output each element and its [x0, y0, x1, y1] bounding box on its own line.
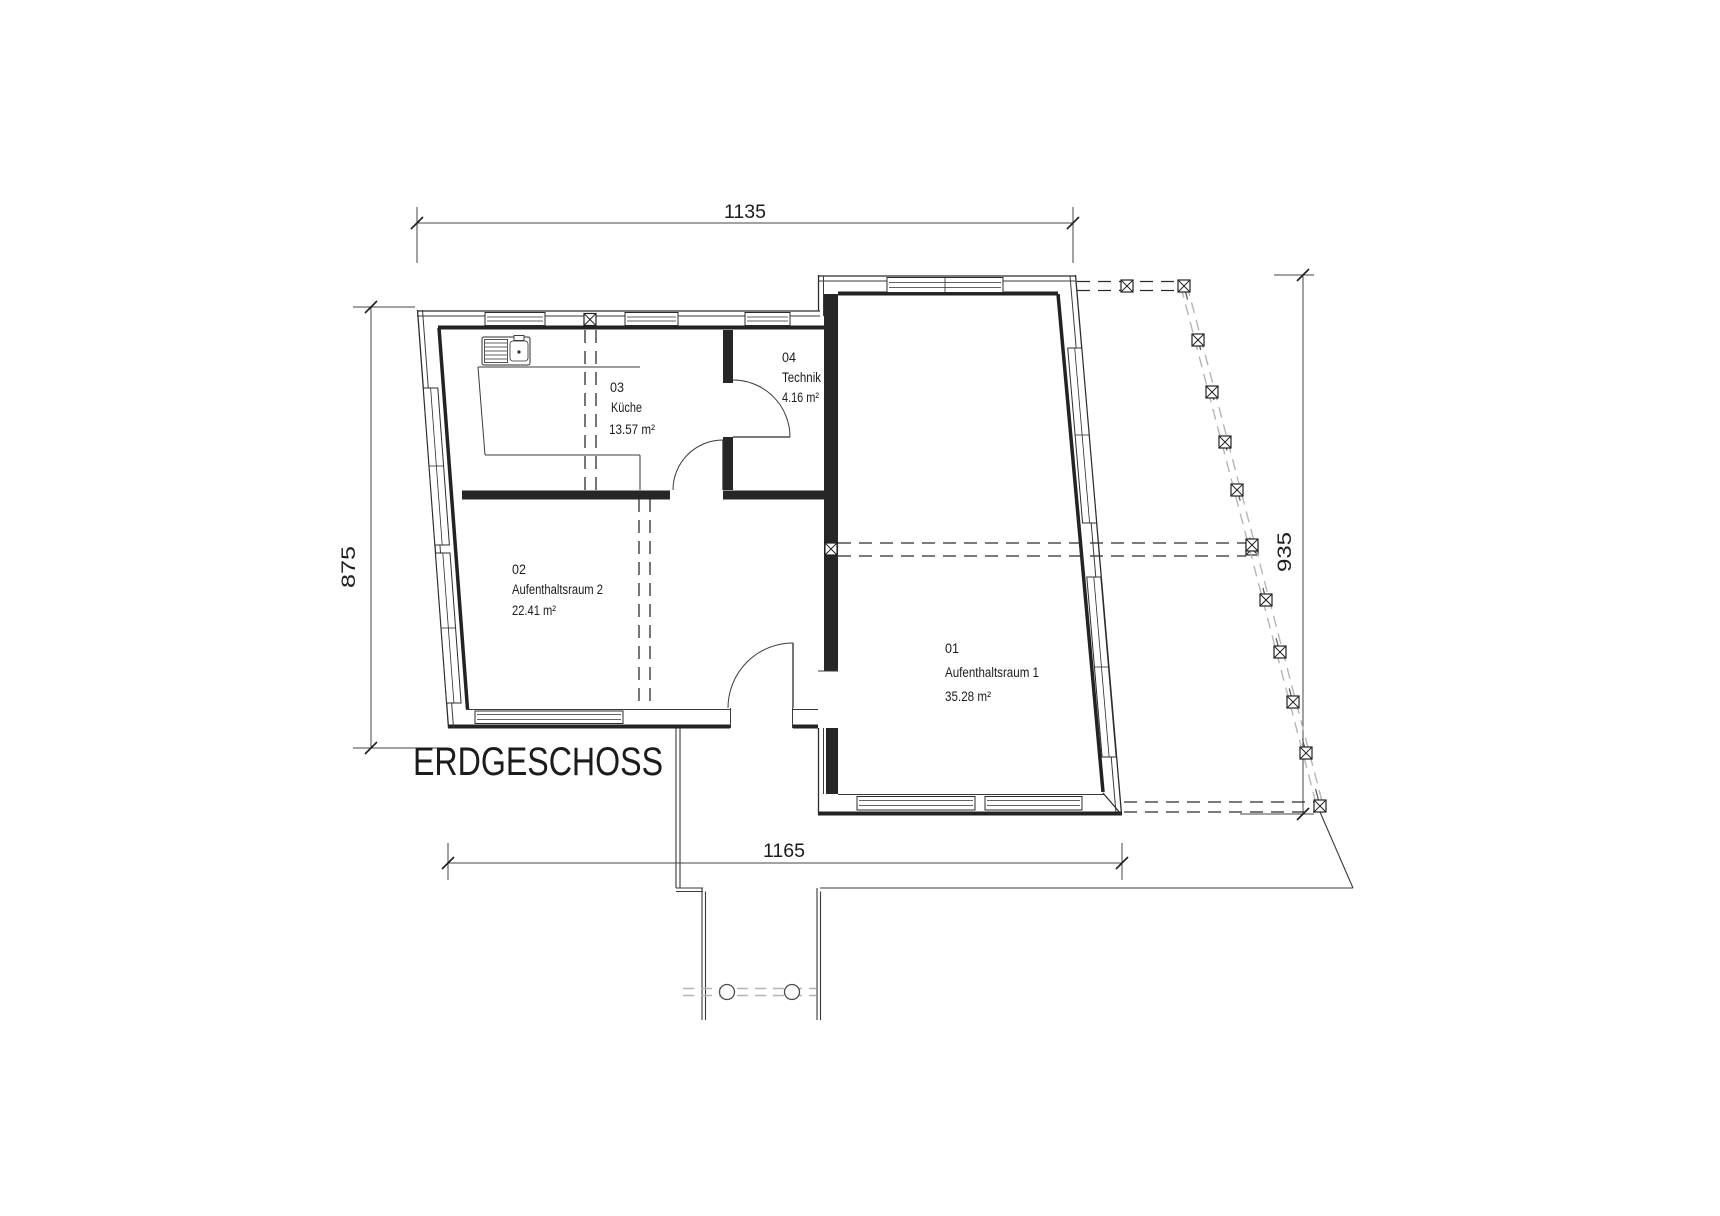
section-marker-icon: [825, 543, 837, 555]
room-area: 35.28 m²: [945, 689, 991, 704]
wall-interior-kitchen-room2: [462, 491, 838, 500]
room-label-aufenthaltsraum-2: 02 Aufenthaltsraum 2 22.41 m²: [512, 562, 603, 618]
boundary-marker-icon: [1300, 747, 1312, 759]
boundary-marker-icon: [1121, 280, 1133, 292]
wall-entry-recess: [819, 728, 839, 814]
site-outline: [676, 728, 1353, 1020]
sink-icon: [482, 336, 530, 366]
boundary-marker-icon: [1314, 800, 1326, 812]
dimension-left: 875: [339, 301, 443, 754]
room-area: 13.57 m²: [609, 422, 655, 437]
boundary-marker-icon: [1287, 696, 1299, 708]
page-title: ERDGESCHOSS: [413, 740, 663, 784]
dimension-bottom-value: 1165: [763, 841, 805, 862]
dimension-top-value: 1135: [724, 202, 766, 223]
boundary-marker-icon: [1178, 280, 1190, 292]
post-icon: [720, 985, 735, 1000]
room-label-technik: 04 Technik 4.16 m²: [782, 350, 821, 405]
room-label-aufenthaltsraum-1: 01 Aufenthaltsraum 1 35.28 m²: [945, 641, 1039, 704]
section-lines: [585, 330, 1258, 708]
boundary-marker-icon: [1206, 386, 1218, 398]
boundary-marker-icon: [1219, 436, 1231, 448]
room-name: Technik: [782, 370, 821, 385]
room-label-kueche: 03 Küche 13.57 m²: [609, 380, 655, 437]
wall-post-marker-icon: [584, 314, 596, 326]
room-area: 4.16 m²: [782, 390, 819, 405]
door-entry-room2: [728, 643, 793, 708]
door-technik: [733, 380, 790, 437]
dimension-bottom: 1165: [442, 841, 1128, 880]
door-kitchen: [673, 440, 723, 490]
room-number: 02: [512, 562, 526, 577]
room-name: Aufenthaltsraum 1: [945, 665, 1039, 680]
dimension-right-value: 935: [1275, 532, 1296, 572]
post-icon: [785, 985, 800, 1000]
room-area: 22.41 m²: [512, 603, 556, 618]
dimension-left-value: 875: [339, 546, 360, 588]
boundary-marker-icon: [1260, 594, 1272, 606]
room-number: 04: [782, 350, 796, 365]
room-name: Aufenthaltsraum 2: [512, 582, 603, 597]
floorplan-drawing: 1135 1165 875 935: [0, 0, 1720, 1216]
room-name: Küche: [611, 400, 642, 415]
floorplan-page: 1135 1165 875 935: [0, 0, 1720, 1216]
dimension-top: 1135: [411, 202, 1079, 263]
wall-interior-technik-room1: [818, 294, 838, 671]
boundary-marker-icon: [1246, 539, 1258, 551]
boundary-marker-icon: [1274, 646, 1286, 658]
room-number: 01: [945, 641, 959, 656]
wall-interior-kitchen-technik: [723, 330, 733, 490]
boundary-marker-icon: [1192, 334, 1204, 346]
room-number: 03: [610, 380, 624, 395]
boundary-marker-icon: [1231, 484, 1243, 496]
